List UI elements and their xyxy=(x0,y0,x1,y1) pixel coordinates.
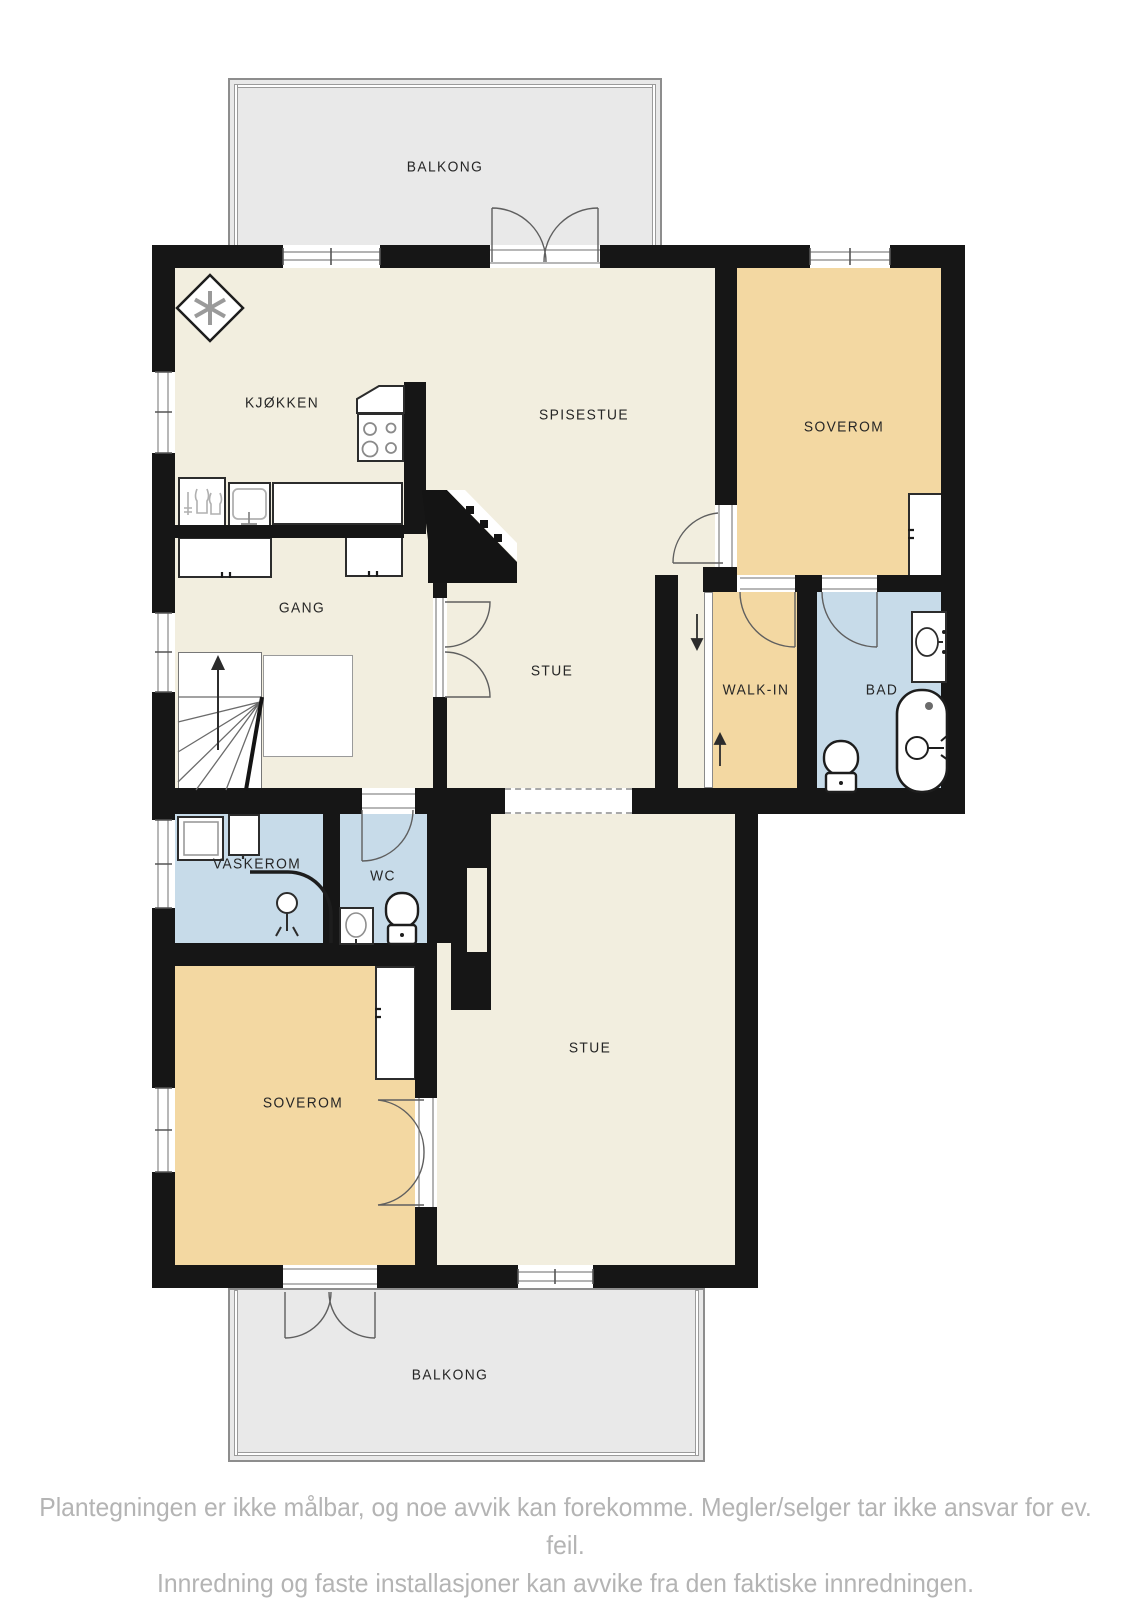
sliding-door-icon xyxy=(704,592,713,788)
balcony-door-opening xyxy=(490,245,600,268)
disclaimer: Plantegningen er ikke målbar, og noe avv… xyxy=(0,1488,1131,1600)
room-label-balkong-top: BALKONG xyxy=(407,159,483,176)
wall-segment xyxy=(593,1265,758,1288)
wall-segment xyxy=(797,592,817,788)
floor-plan: BALKONG KJØKKEN SPISESTUE SOVEROM GANG S… xyxy=(0,0,1131,1600)
balcony-rail xyxy=(234,1290,238,1456)
disclaimer-line-2: Innredning og faste installasjoner kan a… xyxy=(28,1564,1102,1600)
room-vaskerom xyxy=(175,814,323,943)
wall-segment xyxy=(427,814,451,943)
stair-void xyxy=(263,655,353,757)
wardrobe xyxy=(345,536,403,577)
room-label-bad: BAD xyxy=(866,682,899,699)
wall-segment xyxy=(715,268,737,505)
window xyxy=(152,1088,175,1172)
wall-segment xyxy=(152,943,435,966)
wall-segment xyxy=(735,814,758,1288)
wall-segment xyxy=(415,1207,437,1265)
wall-segment xyxy=(941,245,965,814)
wall-segment xyxy=(380,245,490,268)
wall-segment xyxy=(152,245,175,372)
wall-segment xyxy=(152,788,362,814)
kitchen-sink-unit xyxy=(228,482,271,527)
wall-segment xyxy=(877,575,941,592)
balcony-rail xyxy=(234,84,656,88)
room-label-soverom-top: SOVEROM xyxy=(804,419,884,436)
balcony-rail xyxy=(234,84,238,256)
wall-segment xyxy=(433,568,447,598)
balcony-door-opening xyxy=(283,1265,377,1288)
room-label-wc: WC xyxy=(370,868,396,885)
wall-segment xyxy=(152,525,404,538)
stove xyxy=(357,413,404,462)
open-passage xyxy=(505,788,632,814)
door-opening xyxy=(737,575,795,592)
wall-segment xyxy=(323,814,340,943)
disclaimer-line-1: Plantegningen er ikke målbar, og noe avv… xyxy=(28,1488,1102,1564)
wall-segment xyxy=(600,245,810,268)
wall-segment xyxy=(795,575,822,592)
door-opening xyxy=(415,1098,437,1207)
room-label-soverom-bottom: SOVEROM xyxy=(263,1095,343,1112)
wall-segment xyxy=(632,788,965,814)
wall-segment xyxy=(404,382,426,534)
room-label-kjokken: KJØKKEN xyxy=(245,395,319,412)
wall-segment xyxy=(703,567,737,592)
wall-segment xyxy=(152,1265,283,1288)
window xyxy=(152,613,175,692)
room-label-walk-in: WALK-IN xyxy=(723,682,790,699)
wall-segment xyxy=(655,575,678,788)
room-label-vaskerom: VASKEROM xyxy=(213,856,301,873)
room-label-stue-bottom: STUE xyxy=(569,1040,611,1057)
balcony-rail xyxy=(695,1290,699,1456)
room-label-balkong-bottom: BALKONG xyxy=(412,1367,488,1384)
dishwasher xyxy=(178,477,226,528)
wardrobe xyxy=(178,537,272,578)
balcony-rail xyxy=(234,1452,699,1456)
balcony-rail xyxy=(652,84,656,256)
door-opening xyxy=(362,788,415,814)
wall-segment xyxy=(152,908,175,1088)
window xyxy=(152,820,175,908)
wall-segment xyxy=(415,943,437,1098)
door-opening xyxy=(715,505,737,567)
wardrobe xyxy=(375,966,416,1080)
room-label-gang: GANG xyxy=(279,600,325,617)
window xyxy=(518,1265,593,1288)
staircase xyxy=(178,652,262,790)
window xyxy=(283,245,380,268)
door-opening xyxy=(433,598,447,697)
window xyxy=(810,245,890,268)
window xyxy=(152,372,175,453)
kitchen-counter xyxy=(272,482,403,525)
door-opening xyxy=(822,575,877,592)
chimney-notch xyxy=(467,868,487,952)
room-label-spisestue: SPISESTUE xyxy=(539,407,629,424)
wall-segment xyxy=(415,788,505,814)
wall-segment xyxy=(377,1265,518,1288)
room-label-stue-mid: STUE xyxy=(531,663,573,680)
wall-segment xyxy=(433,697,447,788)
